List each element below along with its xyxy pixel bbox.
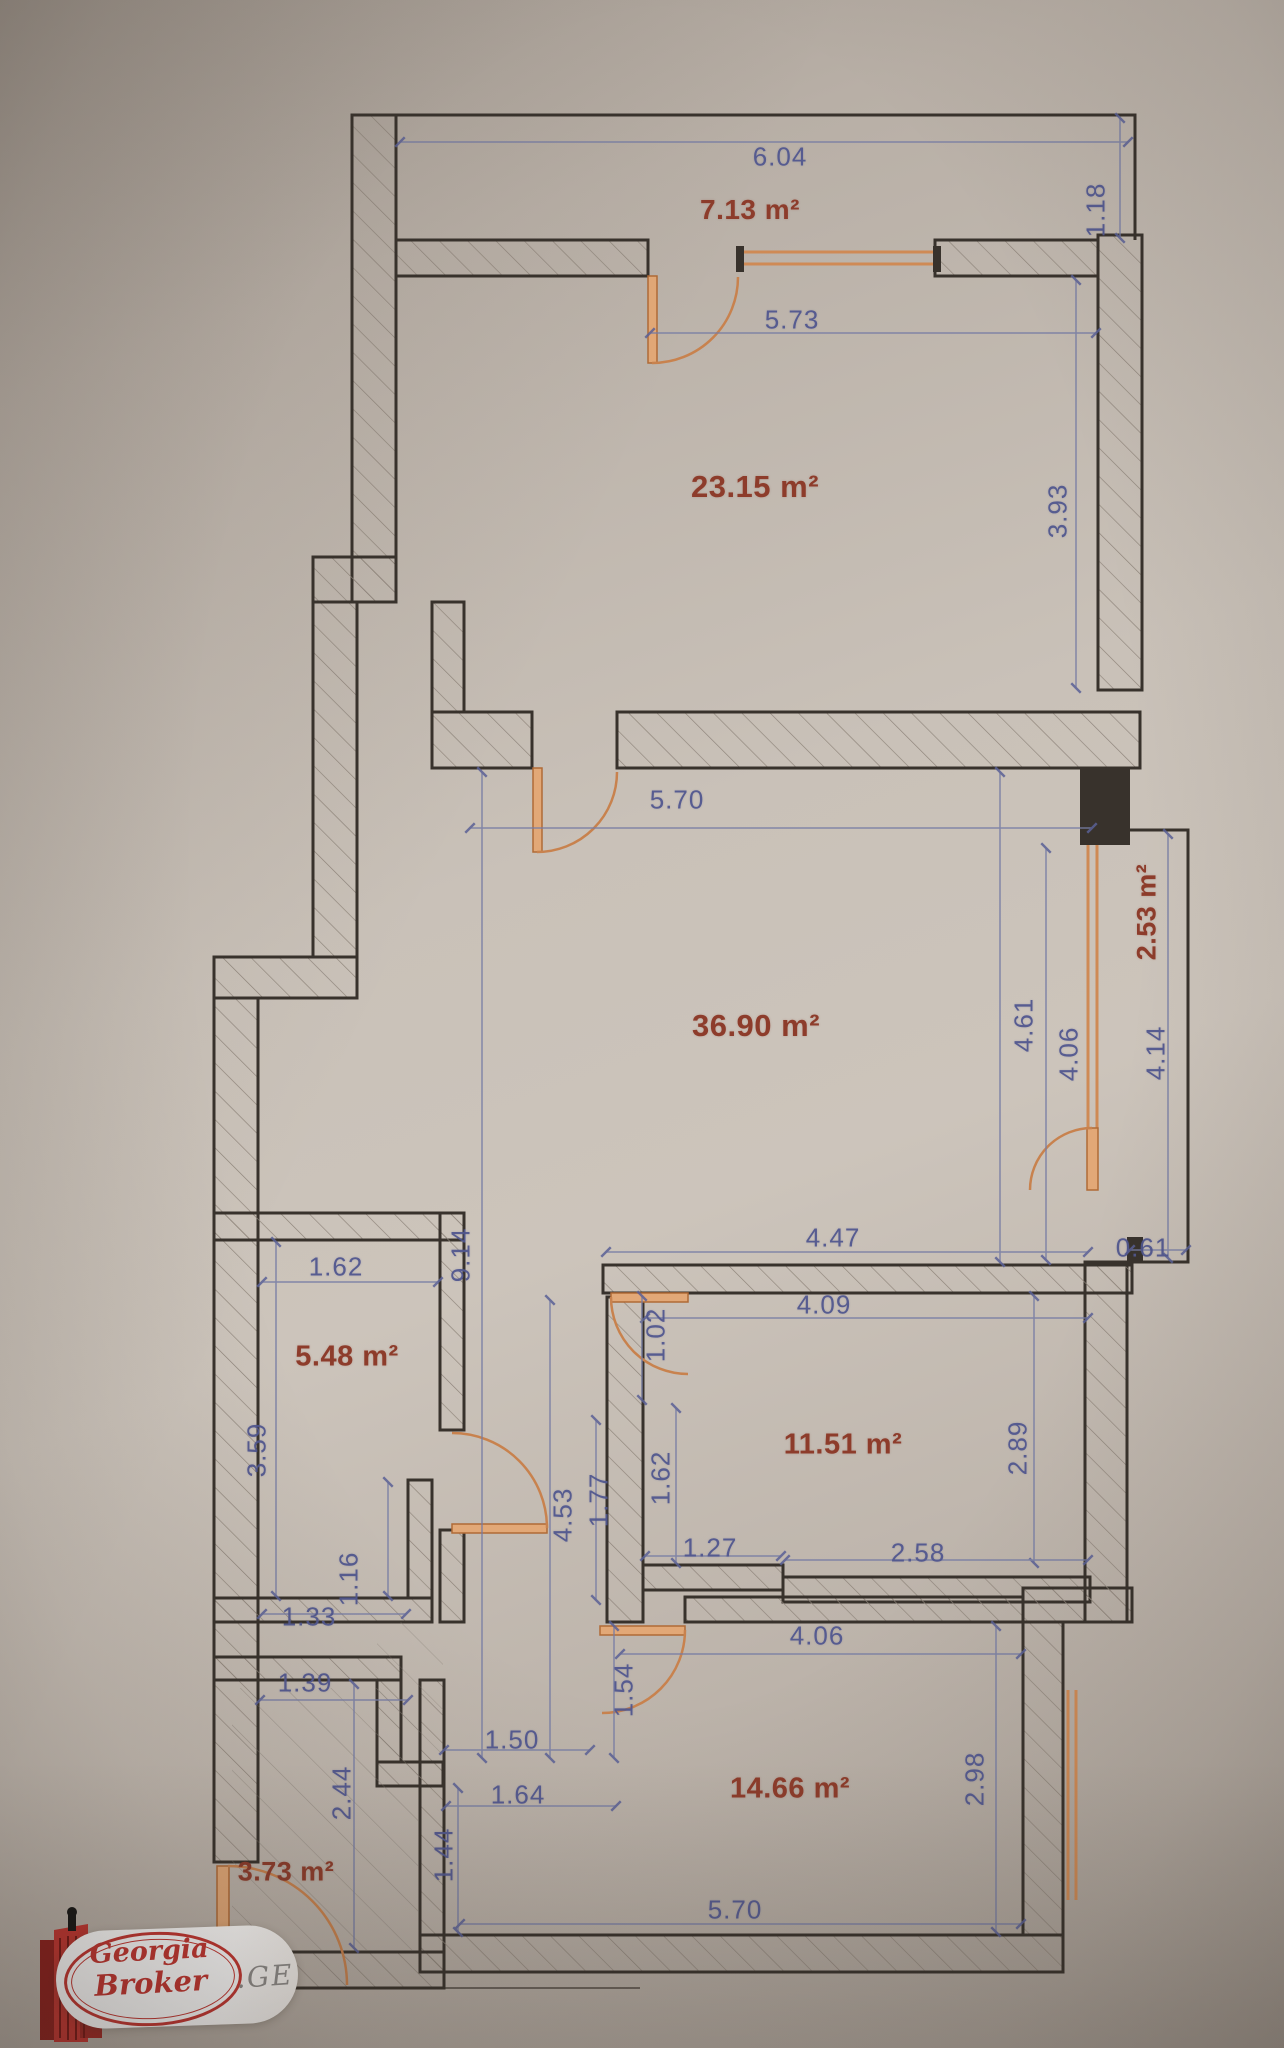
dimension-label: 1.18 (1081, 183, 1112, 238)
room-area-label: 7.13 m² (700, 194, 800, 226)
dimension-label: 1.33 (282, 1602, 337, 1633)
room-area-label: 5.48 m² (295, 1341, 398, 1374)
dimension-label: 1.54 (609, 1663, 640, 1718)
labels-layer: 7.13 m²23.15 m²36.90 m²2.53 m²5.48 m²11.… (0, 0, 1284, 2048)
dimension-label: 1.50 (485, 1725, 540, 1756)
dimension-label: 4.47 (806, 1223, 861, 1254)
room-area-label: 11.51 m² (784, 1429, 902, 1462)
dimension-label: 3.59 (242, 1423, 273, 1478)
dimension-label: 1.02 (641, 1308, 672, 1363)
dimension-label: 2.44 (327, 1766, 358, 1821)
dimension-label: 3.93 (1043, 484, 1074, 539)
dimension-label: 1.62 (309, 1252, 364, 1283)
room-area-label: 3.73 m² (238, 1857, 335, 1888)
dimension-label: 4.61 (1009, 998, 1040, 1053)
room-area-label: 14.66 m² (730, 1773, 850, 1806)
room-area-label: 23.15 m² (691, 469, 819, 505)
dimension-label: 1.64 (491, 1780, 546, 1811)
room-area-label: 36.90 m² (692, 1008, 820, 1044)
room-area-label: 2.53 m² (1132, 864, 1163, 961)
dimension-label: 4.06 (790, 1621, 845, 1652)
dimension-label: 6.04 (753, 142, 808, 173)
agency-logo: Georgia Broker .GE (18, 1902, 318, 2048)
dimension-label: 1.39 (278, 1668, 333, 1699)
dimension-label: 2.89 (1003, 1421, 1034, 1476)
dimension-label: 4.06 (1054, 1027, 1085, 1082)
dimension-label: 4.14 (1141, 1026, 1172, 1081)
dimension-label: 5.73 (765, 305, 820, 336)
floorplan-photo: 7.13 m²23.15 m²36.90 m²2.53 m²5.48 m²11.… (0, 0, 1284, 2048)
dimension-label: 1.77 (584, 1473, 615, 1528)
dimension-label: 5.70 (650, 785, 705, 816)
logo-name: Georgia Broker (69, 1934, 232, 2003)
dimension-label: 4.09 (797, 1290, 852, 1321)
dimension-label: 1.27 (683, 1533, 738, 1564)
dimension-label: 9.14 (446, 1228, 477, 1283)
dimension-label: 2.58 (891, 1538, 946, 1569)
dimension-label: 0.61 (1116, 1233, 1171, 1264)
dimension-label: 1.44 (429, 1828, 460, 1883)
dimension-label: 2.98 (960, 1752, 991, 1807)
dimension-label: 1.16 (334, 1552, 365, 1607)
dimension-label: 4.53 (548, 1488, 579, 1543)
logo-domain: .GE (235, 1958, 295, 1995)
dimension-label: 5.70 (708, 1895, 763, 1926)
dimension-label: 1.62 (646, 1451, 677, 1506)
